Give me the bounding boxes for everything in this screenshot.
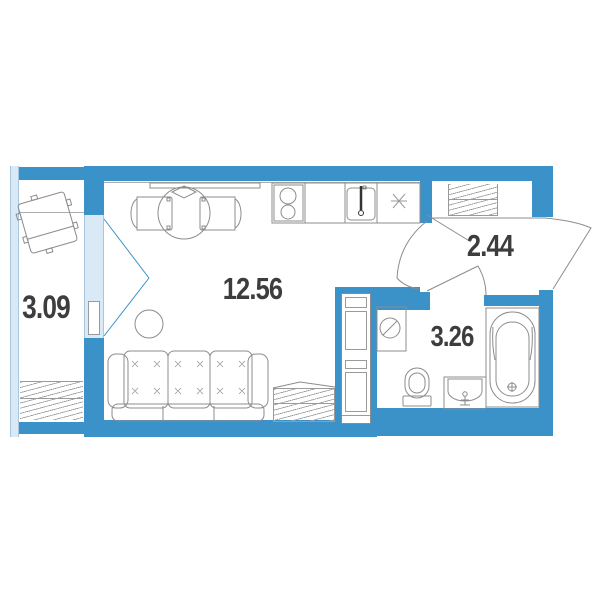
- chair-right-icon: [200, 197, 241, 230]
- radiator-icon: [150, 183, 260, 188]
- bathtub-icon: [486, 308, 539, 407]
- hallway-opening-icon: [397, 215, 471, 289]
- sofa-icon: [108, 351, 268, 421]
- bathroom-area-label: 3.26: [427, 321, 476, 354]
- floor-plan: 3.09 12.56 2.44 3.26: [0, 0, 600, 600]
- living-room-area-label: 12.56: [214, 271, 292, 307]
- hallway-area-label: 2.44: [461, 228, 518, 264]
- balcony-area-label: 3.09: [18, 289, 74, 326]
- chair-left-icon: [131, 197, 172, 230]
- washing-machine-icon: [377, 307, 406, 351]
- armchair-icon: [13, 186, 83, 258]
- toilet-icon: [403, 368, 431, 406]
- furniture-layer: [0, 0, 600, 600]
- balcony-door-swing-icon: [104, 219, 149, 336]
- bathroom-sink-icon: [444, 377, 486, 409]
- pouf-icon: [135, 310, 163, 338]
- bathroom-door-icon: [427, 266, 486, 295]
- dining-table-icon: [158, 186, 210, 239]
- wardrobe-top-icon: [273, 382, 335, 388]
